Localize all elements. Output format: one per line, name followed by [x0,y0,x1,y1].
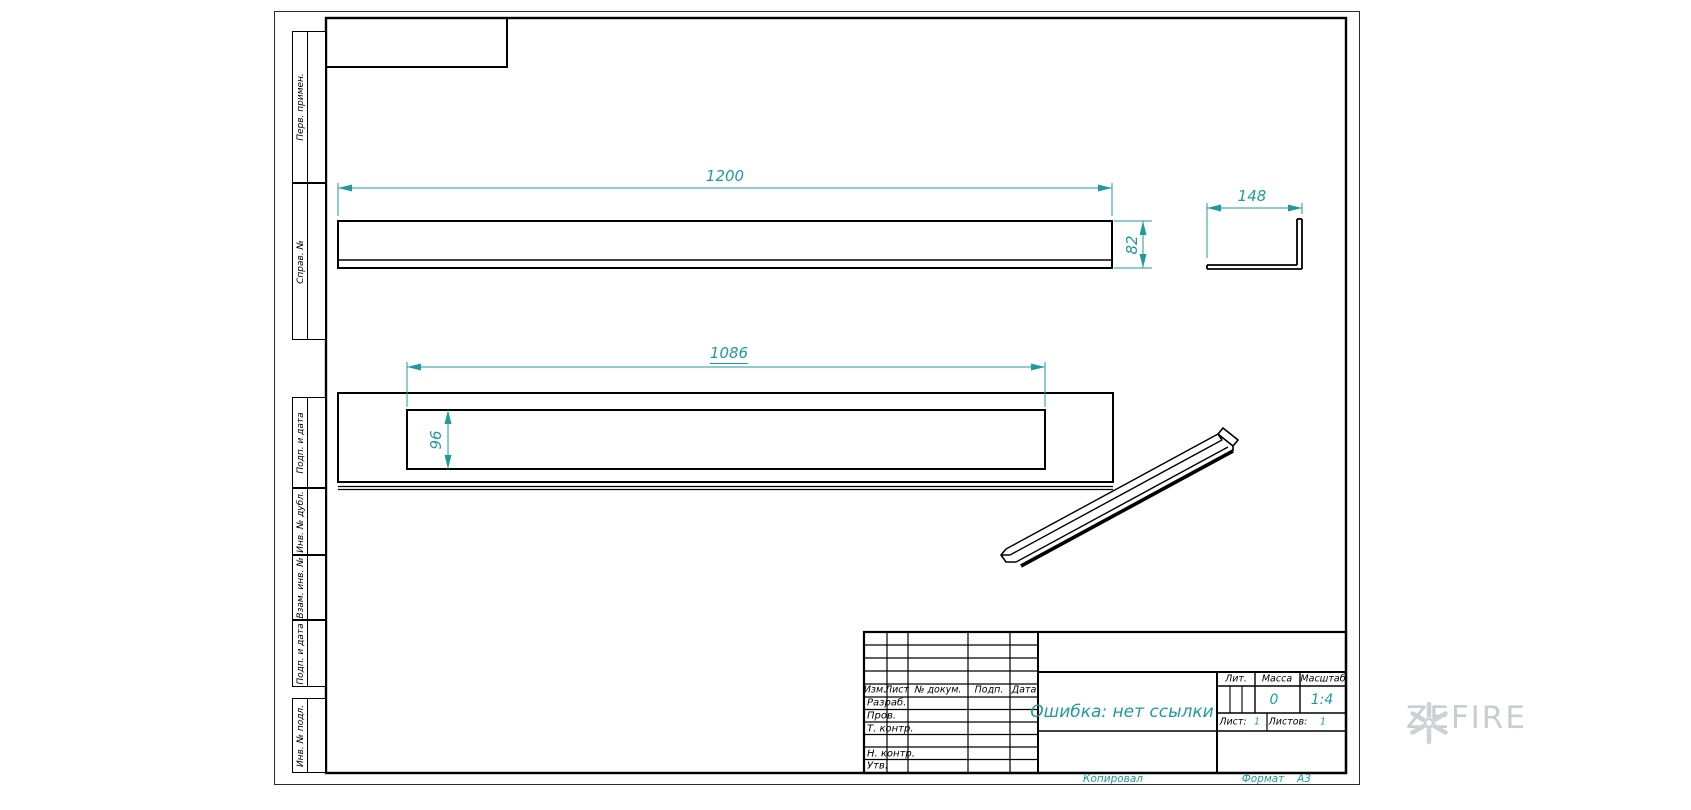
sheet-linework [0,0,1691,810]
dim-1086: 1086 [710,344,748,364]
tb-scale-value: 1:4 [1311,692,1334,708]
tb-row-razrab: Разраб. [867,698,906,709]
tb-col-podp: Подп. [975,685,1004,696]
tb-row-utv: Утв. [867,761,888,772]
dim-96: 96 [427,430,445,449]
tb-mass-value: 0 [1270,692,1279,708]
front-view [338,221,1112,268]
margin-box-sprav-no: Справ. № [292,183,326,340]
tb-mass-label: Масса [1262,674,1292,685]
divider [307,556,308,619]
dim-148: 148 [1238,187,1267,205]
tb-sheet-value: 1 [1254,717,1260,728]
drawing-sheet: Перв. примен. Справ. № Подп. и дата Инв.… [0,0,1691,810]
snowflake-icon [1406,700,1452,746]
tb-scale-label: Масштаб [1300,674,1345,685]
paper-border [275,12,1360,785]
format-label: Формат [1242,773,1285,785]
dimension-lines [338,183,1302,469]
format-value: А3 [1297,773,1311,785]
margin-box-label: Взам. инв. № [296,557,306,618]
margin-box-perv-primen: Перв. примен. [292,31,326,183]
isometric-view [1001,428,1238,566]
margin-box-label: Инв. № подл. [296,704,306,766]
margin-box-label: Подп. и дата [296,623,306,684]
drawing-frame [326,18,1346,773]
tb-col-dokum: № докум. [915,685,962,696]
margin-box-label: Справ. № [296,240,306,284]
tb-col-list: Лист [885,685,909,696]
dim-82: 82 [1123,235,1141,254]
tb-row-tkontr: Т. контр. [867,723,914,734]
margin-box-label: Перв. примен. [296,73,306,141]
divider [307,398,308,487]
divider [307,621,308,686]
tb-row-nkontr: Н. контр. [867,748,915,759]
copied-label: Копировал [1083,773,1143,785]
top-view [338,393,1113,490]
tb-col-izm: Изм. [864,685,886,696]
document-name: Ошибка: нет ссылки [1030,702,1213,722]
margin-box-vzam-inv: Взам. инв. № [292,555,326,620]
margin-box-podp-data-1: Подп. и дата [292,397,326,488]
zefire-watermark: ZEFIRE [1406,700,1527,736]
tb-row-prov: Пров. [867,711,896,722]
divider [307,32,308,182]
divider [307,489,308,554]
margin-box-inv-podl: Инв. № подл. [292,698,326,773]
tb-lit-label: Лит. [1225,674,1247,685]
side-view [1207,219,1302,269]
divider [307,699,308,772]
margin-box-label: Инв. № дубл. [296,491,306,553]
margin-box-label: Подп. и дата [296,412,306,473]
dim-1200: 1200 [706,167,744,185]
tb-sheet-label: Лист: [1219,717,1246,728]
tb-col-data: Дата [1012,685,1037,696]
divider [307,184,308,339]
margin-box-inv-dubl: Инв. № дубл. [292,488,326,555]
margin-box-podp-data-2: Подп. и дата [292,620,326,687]
tb-sheets-label: Листов: [1269,717,1308,728]
tb-sheets-value: 1 [1320,717,1326,728]
